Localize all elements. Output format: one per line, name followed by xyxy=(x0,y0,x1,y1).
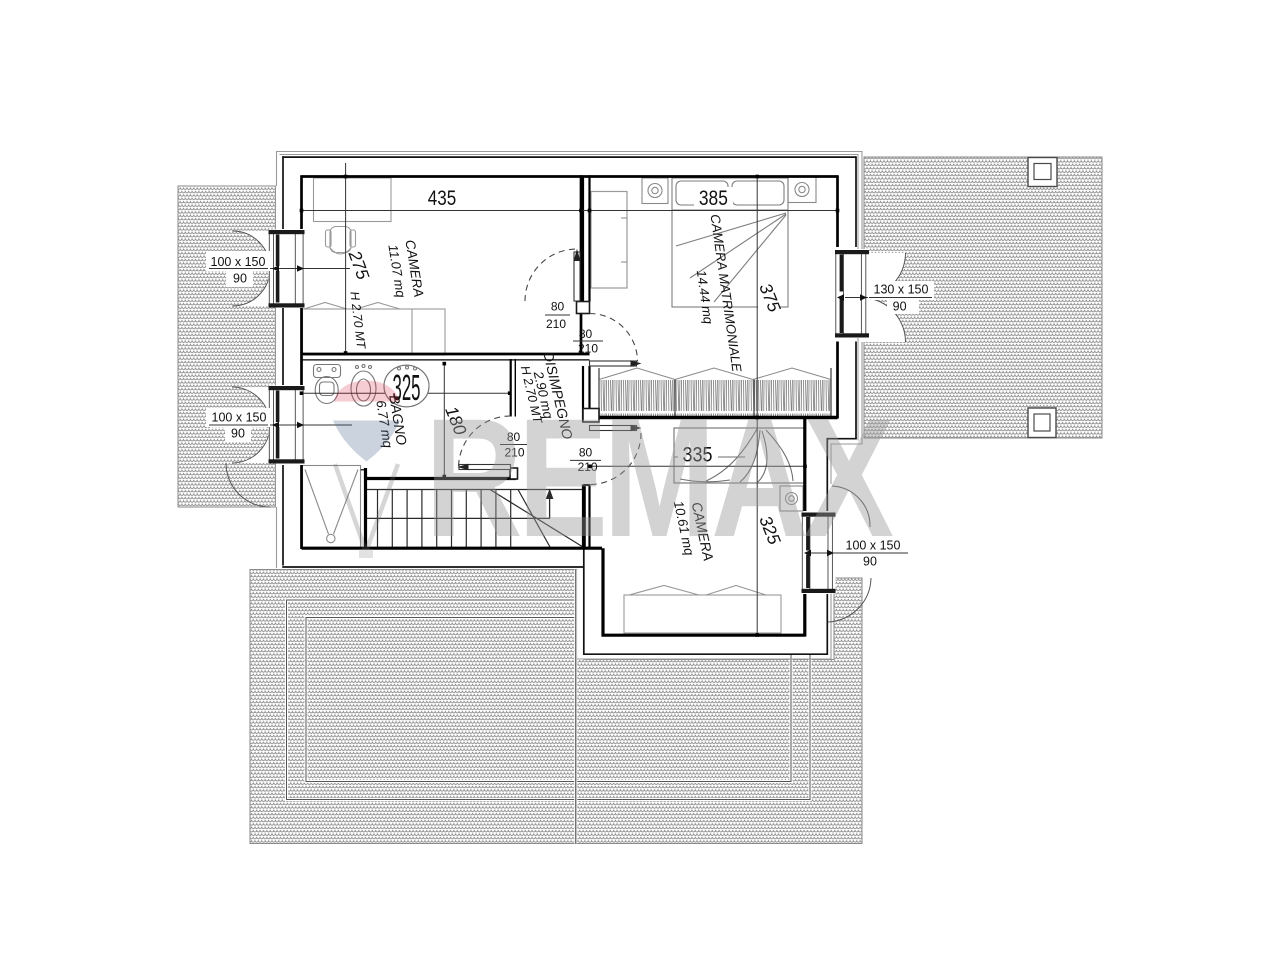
svg-text:210: 210 xyxy=(578,342,598,356)
svg-text:385: 385 xyxy=(699,187,728,210)
svg-text:80: 80 xyxy=(551,300,565,314)
svg-text:435: 435 xyxy=(428,187,457,210)
svg-text:210: 210 xyxy=(546,317,566,331)
svg-text:90: 90 xyxy=(231,427,245,441)
svg-text:80: 80 xyxy=(579,327,593,341)
svg-text:100 x 150: 100 x 150 xyxy=(211,255,266,269)
svg-text:90: 90 xyxy=(893,300,907,314)
svg-text:REMAX: REMAX xyxy=(425,384,893,573)
svg-text:100 x 150: 100 x 150 xyxy=(212,411,267,425)
svg-text:130 x 150: 130 x 150 xyxy=(874,283,929,297)
svg-text:90: 90 xyxy=(233,272,247,286)
